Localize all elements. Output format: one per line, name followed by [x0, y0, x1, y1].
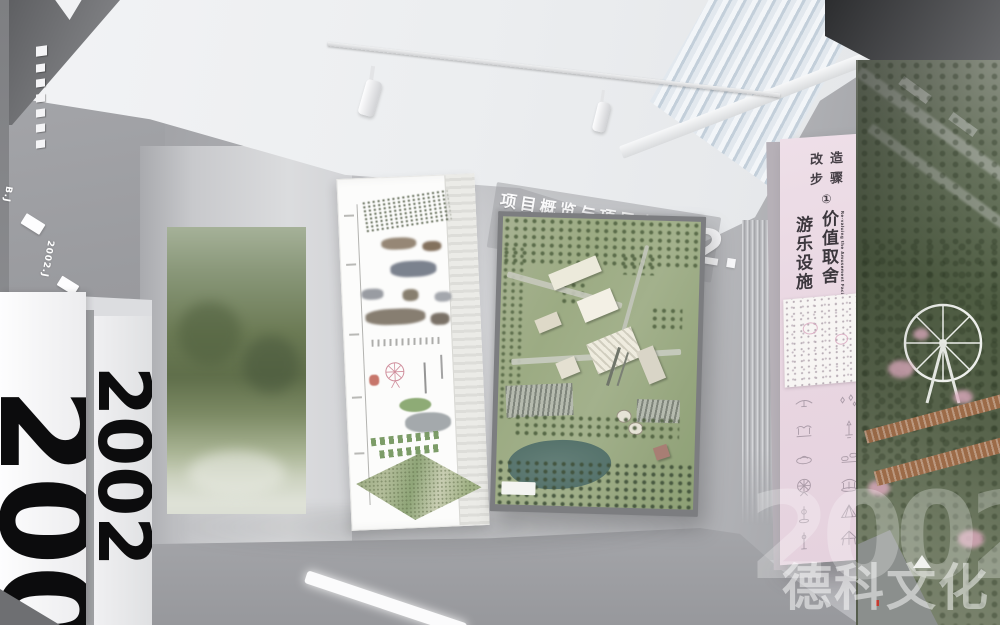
- pillar-year-number: 2002: [0, 387, 86, 625]
- building-sketch: [402, 289, 419, 302]
- tree-blob: [178, 302, 241, 365]
- red-roof-building: [653, 444, 670, 461]
- aerial-map-panel: [490, 211, 706, 517]
- aerial-map: [495, 216, 701, 509]
- bat-swing-icon: [793, 421, 815, 445]
- building-sketch: [390, 260, 437, 278]
- exhibition-hall-scene: B.J 2002.J 19 2002 2002: [0, 0, 1000, 625]
- map-caption-label: [501, 481, 535, 495]
- green-island-graphic: [399, 397, 432, 412]
- lake-shadow-graphic: [405, 412, 452, 433]
- tree-cluster: [650, 307, 682, 334]
- tree-canopy-graphic: [361, 188, 452, 232]
- window-opening: [167, 227, 306, 514]
- timeline-axis: [356, 204, 370, 505]
- tree-band: [502, 216, 701, 268]
- highlight-ring: [835, 333, 848, 345]
- sign-glyph: [36, 63, 45, 72]
- tower-sketch: [440, 354, 443, 379]
- factory-building: [534, 312, 561, 334]
- panel-headline-right: 价值取舍: [816, 209, 841, 287]
- sign-glyph: [36, 45, 47, 57]
- building-sketch: [422, 240, 441, 251]
- building-sketch: [430, 312, 450, 325]
- water-blob: [188, 451, 285, 497]
- tree-blob: [243, 336, 299, 393]
- sign-glyph: [36, 78, 45, 87]
- pillar-gap-shadow: [86, 310, 94, 625]
- small-items-row: [372, 337, 440, 347]
- sign-glyph: [36, 93, 45, 102]
- building-sketch: [381, 236, 417, 250]
- timeline-tick: [355, 452, 365, 454]
- tree-band: [513, 412, 680, 440]
- red-kiosk-sketch: [369, 375, 379, 386]
- highlight-ring: [802, 321, 817, 334]
- building-sketch: [365, 308, 425, 326]
- vertical-wall-sign: [34, 46, 50, 176]
- pillar-year-number: 2002: [94, 366, 152, 566]
- timeline-display-board: [336, 173, 489, 531]
- hedge-row-graphic: [379, 443, 439, 457]
- year-pillar-front: 2002: [0, 292, 86, 625]
- sign-glyph: [36, 139, 45, 148]
- building-sketch: [361, 288, 383, 299]
- panel-headline-left: 游乐设施: [790, 215, 815, 293]
- hang-glider-icon: [793, 394, 815, 418]
- timeline-tick: [347, 263, 357, 265]
- sign-glyph: [36, 108, 45, 117]
- year-pillar-back: 2002: [94, 316, 152, 625]
- watermark-brand: 德科文化: [782, 548, 990, 620]
- sign-glyph: [36, 123, 45, 132]
- tower-sketch: [423, 362, 426, 394]
- timeline-tick: [352, 396, 362, 398]
- ferris-wheel-sketch: [381, 359, 410, 390]
- timeline-tick: [344, 214, 354, 216]
- timeline-tick: [350, 333, 360, 335]
- building-sketch: [435, 291, 452, 302]
